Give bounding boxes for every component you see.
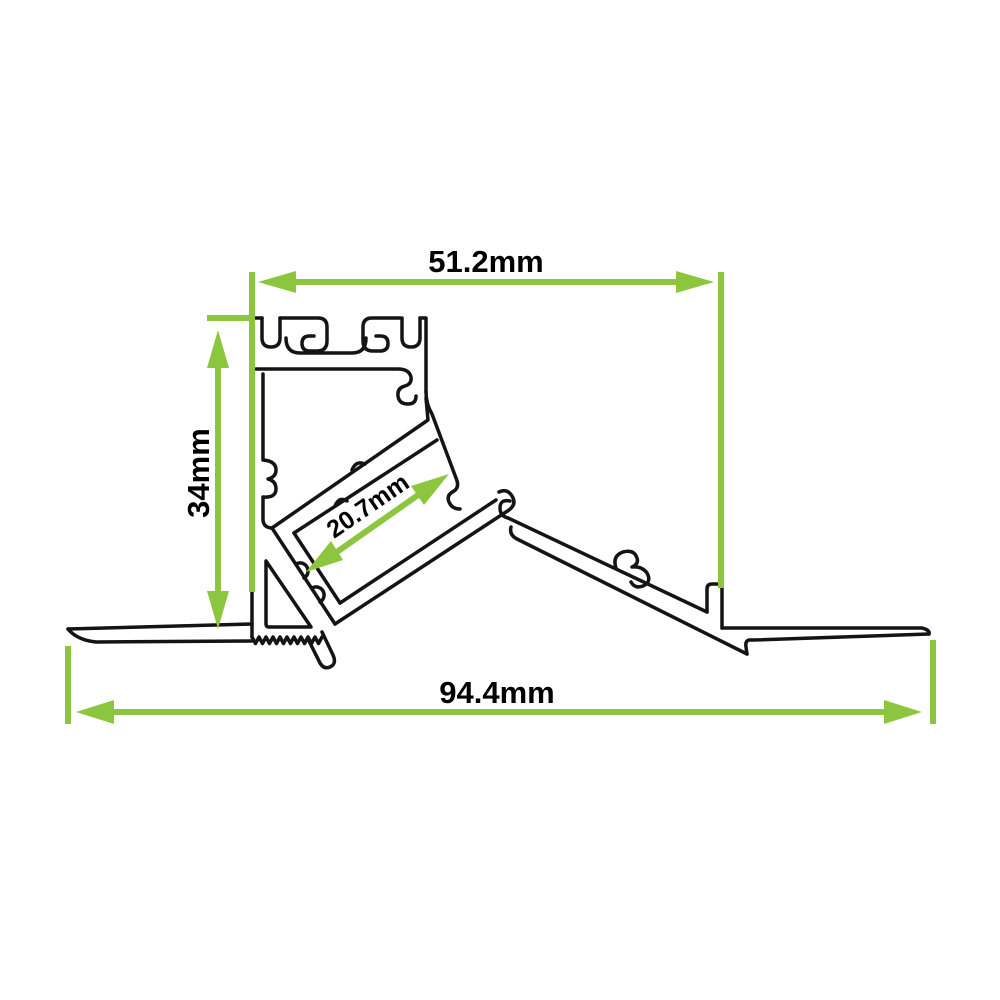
profile-channel-left-wall-outer — [272, 528, 335, 624]
label-overall-width: 94.4mm — [439, 675, 554, 710]
profile-wing-top-surface-lip — [500, 501, 707, 612]
label-top-width: 51.2mm — [428, 244, 543, 279]
profile-cap-slot-right — [402, 318, 420, 347]
profile-cap-interior-screw-boss — [256, 369, 416, 404]
profile-cap-slot-left — [262, 318, 280, 347]
arrowhead-overall-width-left — [76, 700, 114, 724]
led-profile-cross-section-drawing: 51.2mm 34mm 20.7mm 94.4mm — [0, 0, 1000, 1000]
arrowhead-side-height-up — [207, 330, 229, 368]
profile-right-flange-bottom-edge — [746, 634, 929, 654]
arrowhead-overall-width-right — [884, 700, 922, 724]
arrowhead-channel-width-high — [411, 474, 449, 505]
profile-cap-hook-right — [363, 318, 400, 351]
arrowhead-channel-width-low — [306, 541, 343, 572]
profile-wing-mounting-tab — [707, 584, 722, 628]
profile-left-flange-bottom-edge — [68, 629, 252, 642]
profile-left-flange-top-edge — [68, 624, 252, 629]
arrowhead-top-width-left — [258, 271, 296, 293]
profile-serrated-bottom-edge — [252, 637, 322, 644]
arrowhead-top-width-right — [676, 271, 714, 293]
profile-right-flange-top-edge — [722, 628, 929, 634]
profile-triangle-hollow — [266, 561, 311, 627]
profile-inner-wall-screw-boss — [263, 374, 276, 528]
technical-drawing-canvas: 51.2mm 34mm 20.7mm 94.4mm — [0, 0, 1000, 1000]
profile-wing-bottom-surface — [511, 527, 747, 654]
label-side-height: 34mm — [181, 428, 216, 518]
